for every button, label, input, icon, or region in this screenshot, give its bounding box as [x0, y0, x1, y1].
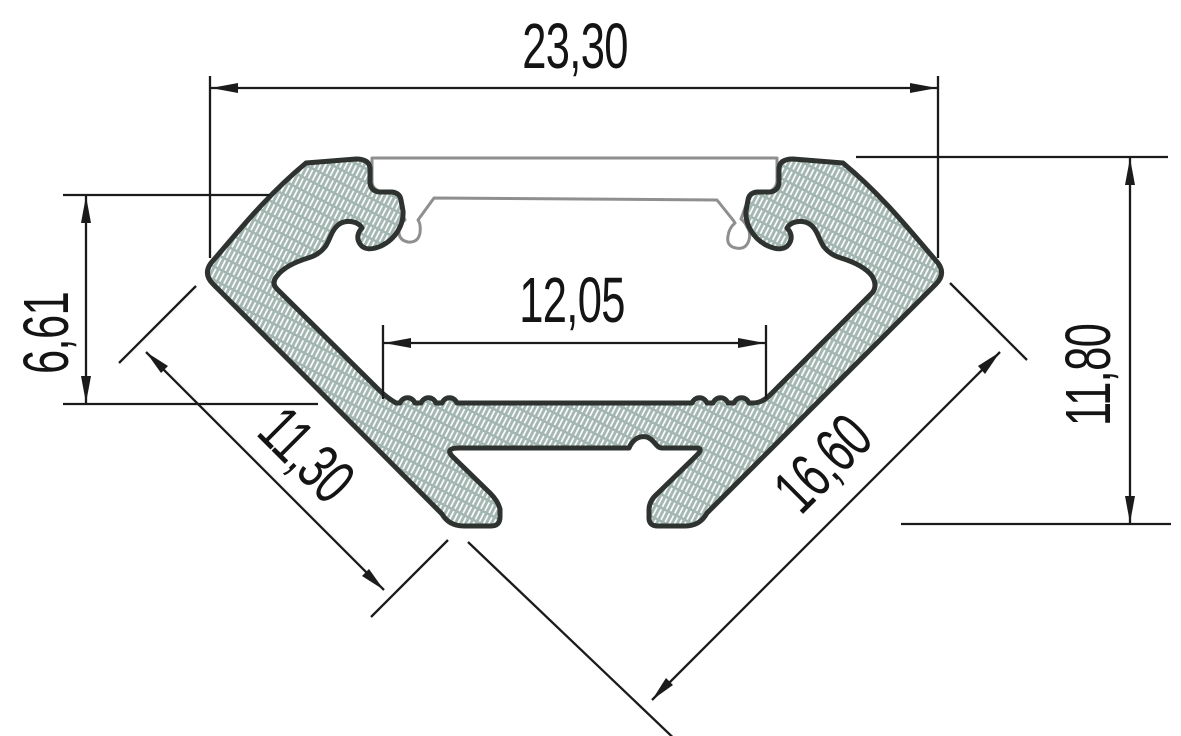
dim-label-overall-width: 23,30 — [522, 10, 627, 83]
dimension-right-flange: 16,60 — [468, 283, 1027, 736]
arrowhead — [384, 338, 411, 348]
extension-line — [371, 540, 448, 617]
diffuser-cover — [372, 158, 777, 248]
dim-label-wing-height: 6,61 — [10, 292, 83, 374]
dimension-right-height: 11,80 — [856, 157, 1171, 524]
dim-label-inner-width: 12,05 — [519, 264, 624, 337]
arrowhead — [211, 83, 238, 93]
arrowhead — [910, 83, 937, 93]
extension-line — [119, 286, 196, 363]
extension-line — [950, 283, 1027, 360]
technical-drawing: 23,30 6,61 11,80 12,05 — [0, 0, 1181, 736]
arrowhead — [1125, 496, 1135, 523]
drawing-canvas: 23,30 6,61 11,80 12,05 — [0, 0, 1181, 736]
arrowhead — [81, 376, 91, 403]
arrowhead — [81, 196, 91, 223]
dim-label-right-height: 11,80 — [1052, 324, 1125, 426]
dimension-inner-width: 12,05 — [383, 264, 766, 399]
arrowhead — [1125, 158, 1135, 185]
extension-line — [468, 542, 684, 736]
arrowhead — [738, 338, 765, 348]
